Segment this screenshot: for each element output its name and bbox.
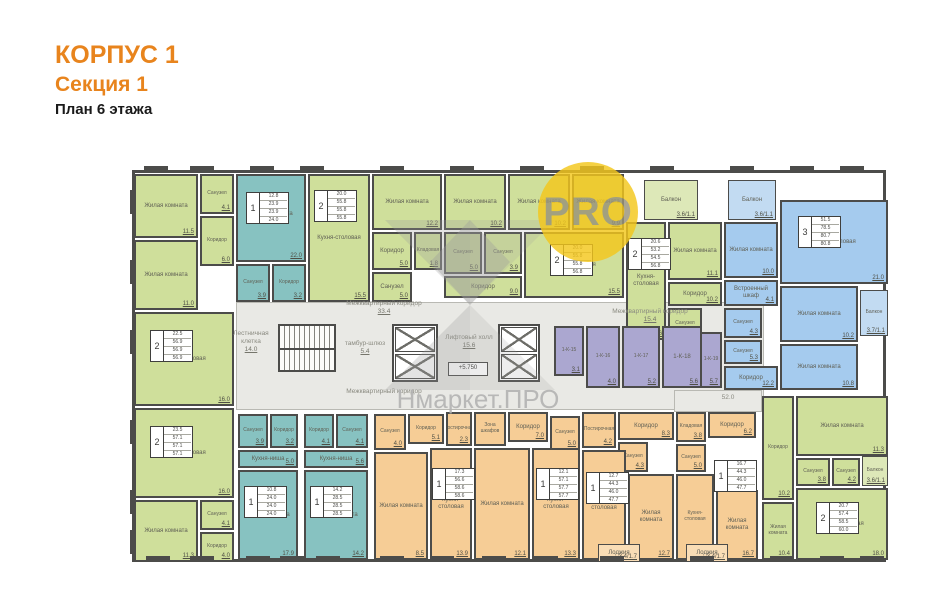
apartment-stamp: 220.757.458.560.0 (816, 502, 859, 534)
room-area: 10.2 (842, 333, 854, 339)
floor-plan-page: КОРПУС 1 Секция 1 План 6 этажа Жилая ком… (0, 0, 941, 600)
window-mark (770, 556, 794, 562)
room: Санузел5.0 (372, 272, 412, 302)
room-area: 16.0 (218, 489, 230, 495)
apartment-number: 2 (315, 191, 328, 221)
apartment-stamp: 117.356.658.658.6 (432, 468, 475, 500)
room: Постирочная4.2 (582, 412, 616, 448)
room-area: 21.0 (872, 275, 884, 281)
window-mark (130, 330, 136, 354)
room-label: Санузел (341, 428, 362, 434)
room-label: Коридор (415, 426, 437, 432)
room: Кухня-ниша5.6 (304, 450, 368, 468)
room-area: 12.2 (762, 381, 774, 387)
room-area: 4.2 (604, 439, 612, 445)
apartment-stamp: 351.578.580.780.8 (798, 216, 841, 248)
room-label: Санузел (554, 430, 575, 436)
window-mark (144, 166, 168, 172)
room-label: Коридор (273, 428, 295, 434)
room: Жилая комната9.9 (572, 174, 624, 230)
apartment-stamp: 116.744.346.047.7 (714, 460, 757, 492)
room-label: Зона шкафов (476, 423, 504, 435)
room-area: 3.9 (258, 293, 266, 299)
room-area: 3.2 (294, 293, 302, 299)
window-mark (534, 556, 558, 562)
window-mark (600, 556, 624, 562)
window-mark (730, 166, 754, 172)
apartment-areas: 20.653.254.556.8 (642, 239, 669, 269)
room: Санузел3.8 (796, 458, 830, 486)
room-area: 11.5 (183, 229, 194, 235)
room-area: 3.8 (818, 477, 826, 483)
room: Зона шкафов (474, 412, 506, 446)
room-label: Коридор (767, 445, 789, 451)
apartment-stamp: 220.055.855.856.8 (550, 244, 593, 276)
room-area: 6.2 (744, 429, 752, 435)
room: Санузел4.1 (200, 500, 234, 530)
room-area: 3.6/1.1 (867, 478, 885, 484)
apartment-areas: 14.228.528.528.5 (324, 487, 351, 517)
room-area: 10.8 (842, 381, 854, 387)
room-area: 12.2 (426, 221, 438, 227)
window-mark (380, 166, 404, 172)
room-label: Жилая комната (796, 311, 841, 318)
corridor-area: 14.0 (226, 346, 276, 354)
room-label: Коридор (633, 423, 659, 430)
apartment-number: 2 (817, 503, 830, 533)
room-label: Жилая комната (479, 501, 524, 508)
room-label: Кухня-столовая (678, 511, 712, 523)
corridor-area: 5.4 (340, 348, 390, 356)
room-label: Жилая комната (672, 248, 717, 255)
room-label: Санузел (242, 428, 263, 434)
room-area: 10.0 (762, 269, 774, 275)
room-area: 4.0 (608, 379, 616, 385)
room-area: 9.0 (510, 289, 518, 295)
apartment-stamp: 222.556.956.956.9 (150, 330, 193, 362)
window-mark (520, 166, 544, 172)
room-label: Кухня-ниша (251, 456, 286, 463)
room: Коридор10.2 (762, 396, 794, 500)
room-area: 8.3 (662, 431, 670, 437)
room-label: Жилая комната (143, 203, 188, 210)
apartment-number: 1 (715, 461, 728, 491)
corridor-label: +5.750 (448, 362, 488, 376)
room-label: Санузел (802, 469, 823, 475)
window-mark (580, 166, 604, 172)
window-mark (190, 166, 214, 172)
room: Жилая комната10.2 (444, 174, 506, 230)
room: Коридор6.0 (200, 216, 234, 266)
apartment-stamp: 112.823.923.924.0 (246, 192, 289, 224)
room-label: Коридор (682, 291, 708, 298)
room-label: 1-К-17 (633, 354, 650, 360)
room-label: Жилая комната (452, 199, 497, 206)
window-mark (790, 166, 814, 172)
apartment-number: 1 (247, 193, 260, 223)
room: Жилая комната12.2 (372, 174, 442, 230)
window-mark (130, 190, 136, 214)
room-area: 5.0 (568, 441, 576, 447)
room: Коридор5.1 (408, 414, 444, 444)
room-label: Коридор (470, 284, 496, 291)
apartment-number: 3 (799, 217, 812, 247)
room-label: Санузел (379, 429, 400, 435)
room-label: Жилая комната (143, 528, 188, 535)
room: Санузел4.0 (374, 414, 406, 450)
room-label: Коридор (206, 544, 228, 550)
room: Коридор8.3 (618, 412, 674, 440)
elevator-group (498, 324, 540, 382)
room-area: 5.6 (690, 379, 698, 385)
room: Жилая комната8.5 (374, 452, 428, 560)
room: Кухня-столовая13.9 (430, 448, 472, 560)
room: 1-К-164.0 (586, 326, 620, 388)
room-area: 4.0 (222, 553, 230, 559)
room-label: Санузел (379, 284, 404, 291)
window-mark (250, 166, 274, 172)
room-label: Кухня-ниша (319, 456, 354, 463)
room-area: 5.2 (648, 379, 656, 385)
apartment-number: 2 (551, 245, 564, 275)
title-floor: План 6 этажа (55, 99, 179, 120)
room-area: 10.2 (490, 221, 502, 227)
window-mark (130, 530, 136, 554)
room-label: Коридор (719, 422, 745, 429)
apartment-number: 1 (537, 469, 550, 499)
room-area: 5.0 (694, 463, 702, 469)
elevator-group (392, 324, 438, 382)
apartment-number: 2 (629, 239, 642, 269)
room-area: 2.3 (460, 437, 468, 443)
window-mark (316, 556, 340, 562)
room-area: 16.7 (742, 551, 754, 557)
room: Встроенный шкаф4.1 (724, 280, 778, 306)
room: 1-К-153.1 (554, 326, 584, 376)
room: Кладовая1.8 (414, 232, 442, 270)
room: Жилая комната10.8 (780, 344, 858, 390)
apartment-stamp: 112.157.157.757.7 (536, 468, 579, 500)
window-mark (860, 556, 884, 562)
room: Жилая комната11.0 (134, 240, 198, 310)
room-label: Кладовая (416, 248, 440, 254)
window-mark (146, 556, 170, 562)
room: Санузел3.9 (484, 232, 522, 274)
apartment-stamp: 220.653.254.556.8 (628, 238, 671, 270)
room-label: Санузел (242, 280, 263, 286)
corridor-label: Межквартирный коридор33.4 (326, 300, 442, 324)
room-label: Жилая комната (575, 199, 620, 206)
room-label: 1-К-15 (561, 348, 578, 354)
room-area: 13.3 (564, 551, 576, 557)
room: Санузел5.0 (550, 416, 580, 450)
room: Коридор3.2 (270, 414, 298, 448)
apartment-areas: 20.757.458.560.0 (830, 503, 857, 533)
room: Коридор10.2 (668, 282, 722, 306)
room-area: 12.7 (658, 551, 670, 557)
room-label: Жилая комната (516, 199, 561, 206)
room-label: Санузел (680, 455, 701, 461)
apartment-areas: 51.578.580.780.8 (812, 217, 839, 247)
room-area: 3.6/1.1 (677, 212, 695, 218)
room-area: 15.5 (608, 289, 620, 295)
corridor-area: 15.6 (442, 342, 496, 350)
window-mark (650, 166, 674, 172)
room-label: Жилая комната (764, 525, 792, 537)
room-area: 4.2 (848, 477, 856, 483)
apartment-areas: 12.744.346.047.7 (600, 473, 627, 503)
room-area: 8.5 (416, 551, 424, 557)
room-label: Санузел (206, 191, 227, 197)
room-area: 4.0 (394, 441, 402, 447)
room-area: 3.8 (694, 433, 702, 439)
room-area: 16.0 (218, 397, 230, 403)
window-mark (690, 556, 714, 562)
room-label: Коридор (278, 280, 300, 286)
room-area: 5.0 (400, 293, 408, 299)
room: Жилая комната10.0 (724, 222, 778, 278)
room-label: Жилая комната (728, 247, 773, 254)
apartment-number: 1 (245, 487, 258, 517)
room-area: 5.1 (432, 435, 440, 441)
room-label: Жилая комната (718, 518, 756, 532)
elevator-shaft (501, 354, 537, 379)
room-label: 1-К-19 (703, 357, 720, 363)
room-label: Постирочная (583, 427, 615, 433)
apartment-number: 1 (587, 473, 600, 503)
room: Санузел4.1 (200, 174, 234, 214)
room: Балкон3.6/1.1 (728, 180, 776, 220)
room: Коридор9.0 (444, 276, 522, 298)
floor-plan: Жилая комната11.5Санузел4.1Коридор6.0Жил… (130, 160, 892, 568)
room: Кухня-столовая13.3 (532, 448, 580, 560)
room-label: Кухня-столовая (316, 235, 362, 242)
room-area: 22.0 (290, 253, 302, 259)
room-area: 4.1 (222, 521, 230, 527)
room-area: 4.3 (636, 463, 644, 469)
room-area: 3.6/1.1 (755, 212, 773, 218)
apartment-areas: 23.557.157.157.1 (164, 427, 191, 457)
room-area: 5.0 (286, 459, 294, 465)
apartment-stamp: 114.228.528.528.5 (310, 486, 353, 518)
apartment-stamp: 223.557.157.157.1 (150, 426, 193, 458)
room-area: 5.6 (356, 459, 364, 465)
window-mark (450, 166, 474, 172)
apartment-areas: 20.055.855.856.8 (564, 245, 591, 275)
room-label: Балкон (865, 310, 884, 316)
room-label: Санузел (452, 250, 473, 256)
room: Жилая комната10.4 (762, 502, 794, 560)
title-section: Секция 1 (55, 71, 179, 98)
room-label: Кухня-столовая (628, 274, 664, 288)
window-mark (482, 556, 506, 562)
room-label: Балкон (866, 468, 885, 474)
apartment-areas: 22.556.956.956.9 (164, 331, 191, 361)
apartment-stamp: 112.744.346.047.7 (586, 472, 629, 504)
stairs (278, 324, 336, 372)
room: Кладовая3.8 (676, 412, 706, 442)
room-area: 7.0 (536, 433, 544, 439)
corridor-label: Лестничная клетка14.0 (226, 330, 276, 354)
corridor-area: 33.4 (326, 308, 442, 316)
room: Жилая комната10.2 (780, 286, 858, 342)
room-area: 3.2 (286, 439, 294, 445)
room-area: 3.9 (256, 439, 264, 445)
apartment-stamp: 110.824.024.024.0 (244, 486, 287, 518)
room-label: Коридор (308, 428, 330, 434)
room-label: Жилая комната (384, 199, 429, 206)
room-label: Жилая комната (630, 510, 672, 524)
room-label: Балкон (741, 197, 763, 204)
room-area: 10.2 (706, 297, 718, 303)
corridor-label: Межквартирный коридор (326, 388, 442, 412)
room: Балкон3.7/1.1 (860, 290, 888, 336)
room-label: Жилая комната (378, 503, 423, 510)
room: Санузел5.0 (676, 444, 706, 472)
room: Санузел4.2 (832, 458, 860, 486)
room-area: 3.7/1.1 (867, 328, 885, 334)
corridor-label: 52.0 (708, 394, 748, 418)
window-mark (840, 166, 864, 172)
room-area: 5.0 (470, 265, 478, 271)
room-area: 3.1 (572, 367, 580, 373)
room: 1-К-195.7 (700, 332, 722, 388)
room-area: 3.9 (510, 265, 518, 271)
apartment-number: 2 (151, 331, 164, 361)
room-area: 4.1 (356, 439, 364, 445)
window-mark (380, 556, 404, 562)
room: 1-К-185.6 (662, 326, 702, 388)
title-block: КОРПУС 1 Секция 1 План 6 этажа (55, 40, 179, 120)
room-label: Постирочная (446, 426, 472, 432)
room: Жилая комната11.3 (134, 500, 198, 562)
room-label: Кладовая (679, 424, 703, 430)
window-mark (130, 420, 136, 444)
window-mark (246, 556, 270, 562)
corridor-label: тамбур-шлюз5.4 (340, 340, 390, 364)
room: Санузел5.0 (444, 232, 482, 274)
room-label: Коридор (515, 424, 541, 431)
room: 1-К-175.2 (622, 326, 660, 388)
room-label: Санузел (206, 512, 227, 518)
apartment-number: 1 (311, 487, 324, 517)
corridor-label: Лифтовый холл15.6 (442, 334, 496, 358)
elevator-shaft (395, 327, 435, 352)
apartment-areas: 17.356.658.658.6 (446, 469, 473, 499)
room: Жилая комната11.3 (796, 396, 888, 456)
apartment-stamp: 220.055.855.855.8 (314, 190, 357, 222)
corridor-area: 15.4 (592, 316, 708, 324)
room-area: 6.0 (222, 257, 230, 263)
room: Коридор5.0 (372, 232, 412, 270)
apartment-number: 1 (433, 469, 446, 499)
window-mark (430, 556, 454, 562)
room-area: 4.1 (222, 205, 230, 211)
title-building: КОРПУС 1 (55, 40, 179, 71)
window-mark (130, 260, 136, 284)
room-area: 10.2 (554, 221, 566, 227)
window-mark (190, 556, 214, 562)
room-area: 10.2 (778, 491, 790, 497)
room-area: 4.1 (322, 439, 330, 445)
room: Жилая комната10.2 (508, 174, 570, 230)
apartment-areas: 16.744.346.047.7 (728, 461, 755, 491)
corridor-label: Межквартирный коридор15.4 (592, 308, 708, 332)
room: Кухня-ниша5.0 (238, 450, 298, 468)
room: Коридор7.0 (508, 412, 548, 442)
apartment-areas: 20.055.855.855.8 (328, 191, 355, 221)
room-label: 1-К-16 (595, 354, 612, 360)
room-area: 5.3 (750, 355, 758, 361)
room: Санузел4.1 (336, 414, 368, 448)
window-mark (280, 556, 304, 562)
room-area: 5.7 (710, 379, 718, 385)
room-area: 4.3 (750, 329, 758, 335)
room-label: Балкон (660, 197, 682, 204)
room: Балкон3.6/1.1 (644, 180, 698, 220)
room-area: 15.5 (354, 293, 366, 299)
room: Жилая комната11.1 (668, 222, 722, 280)
room-area: 11.1 (707, 271, 718, 277)
room: Балкон3.6/1.1 (862, 456, 888, 486)
room-label: Коридор (206, 238, 228, 244)
room-area: 5.0 (400, 261, 408, 267)
room-label: Коридор (738, 375, 764, 382)
room: Санузел5.3 (724, 340, 762, 364)
room-label: Санузел (732, 349, 753, 355)
room: Жилая комната12.1 (474, 448, 530, 560)
room: Санузел4.3 (724, 308, 762, 338)
room-area: 4.1 (766, 297, 774, 303)
room: Коридор3.2 (272, 264, 306, 302)
room-label: Жилая комната (819, 423, 864, 430)
room-label: 1-К-18 (672, 354, 692, 361)
apartment-areas: 12.157.157.757.7 (550, 469, 577, 499)
elevator-shaft (501, 327, 537, 352)
room-label: Жилая комната (143, 272, 188, 279)
room-area: 9.9 (612, 221, 620, 227)
room-label: Санузел (492, 250, 513, 256)
room: Жилая комната11.5 (134, 174, 198, 238)
room: Санузел3.9 (238, 414, 268, 448)
room-area: 11.3 (873, 447, 884, 453)
room: Постирочная2.3 (446, 412, 472, 446)
window-mark (130, 490, 136, 514)
room-area: 14.2 (352, 551, 364, 557)
apartment-areas: 12.823.923.924.0 (260, 193, 287, 223)
room-label: Санузел (835, 469, 856, 475)
room-area: 13.9 (456, 551, 468, 557)
window-mark (820, 556, 844, 562)
room-area: 1.8 (430, 261, 438, 267)
elevator-shaft (395, 354, 435, 379)
room-label: Коридор (379, 248, 405, 255)
apartment-areas: 10.824.024.024.0 (258, 487, 285, 517)
room-label: Санузел (732, 320, 753, 326)
room-label: Жилая комната (796, 364, 841, 371)
room: Коридор12.2 (724, 366, 778, 390)
room: Санузел3.9 (236, 264, 270, 302)
apartment-number: 2 (151, 427, 164, 457)
room-area: 11.0 (183, 301, 194, 307)
room: Коридор4.1 (304, 414, 334, 448)
room-area: 12.1 (514, 551, 526, 557)
window-mark (300, 166, 324, 172)
